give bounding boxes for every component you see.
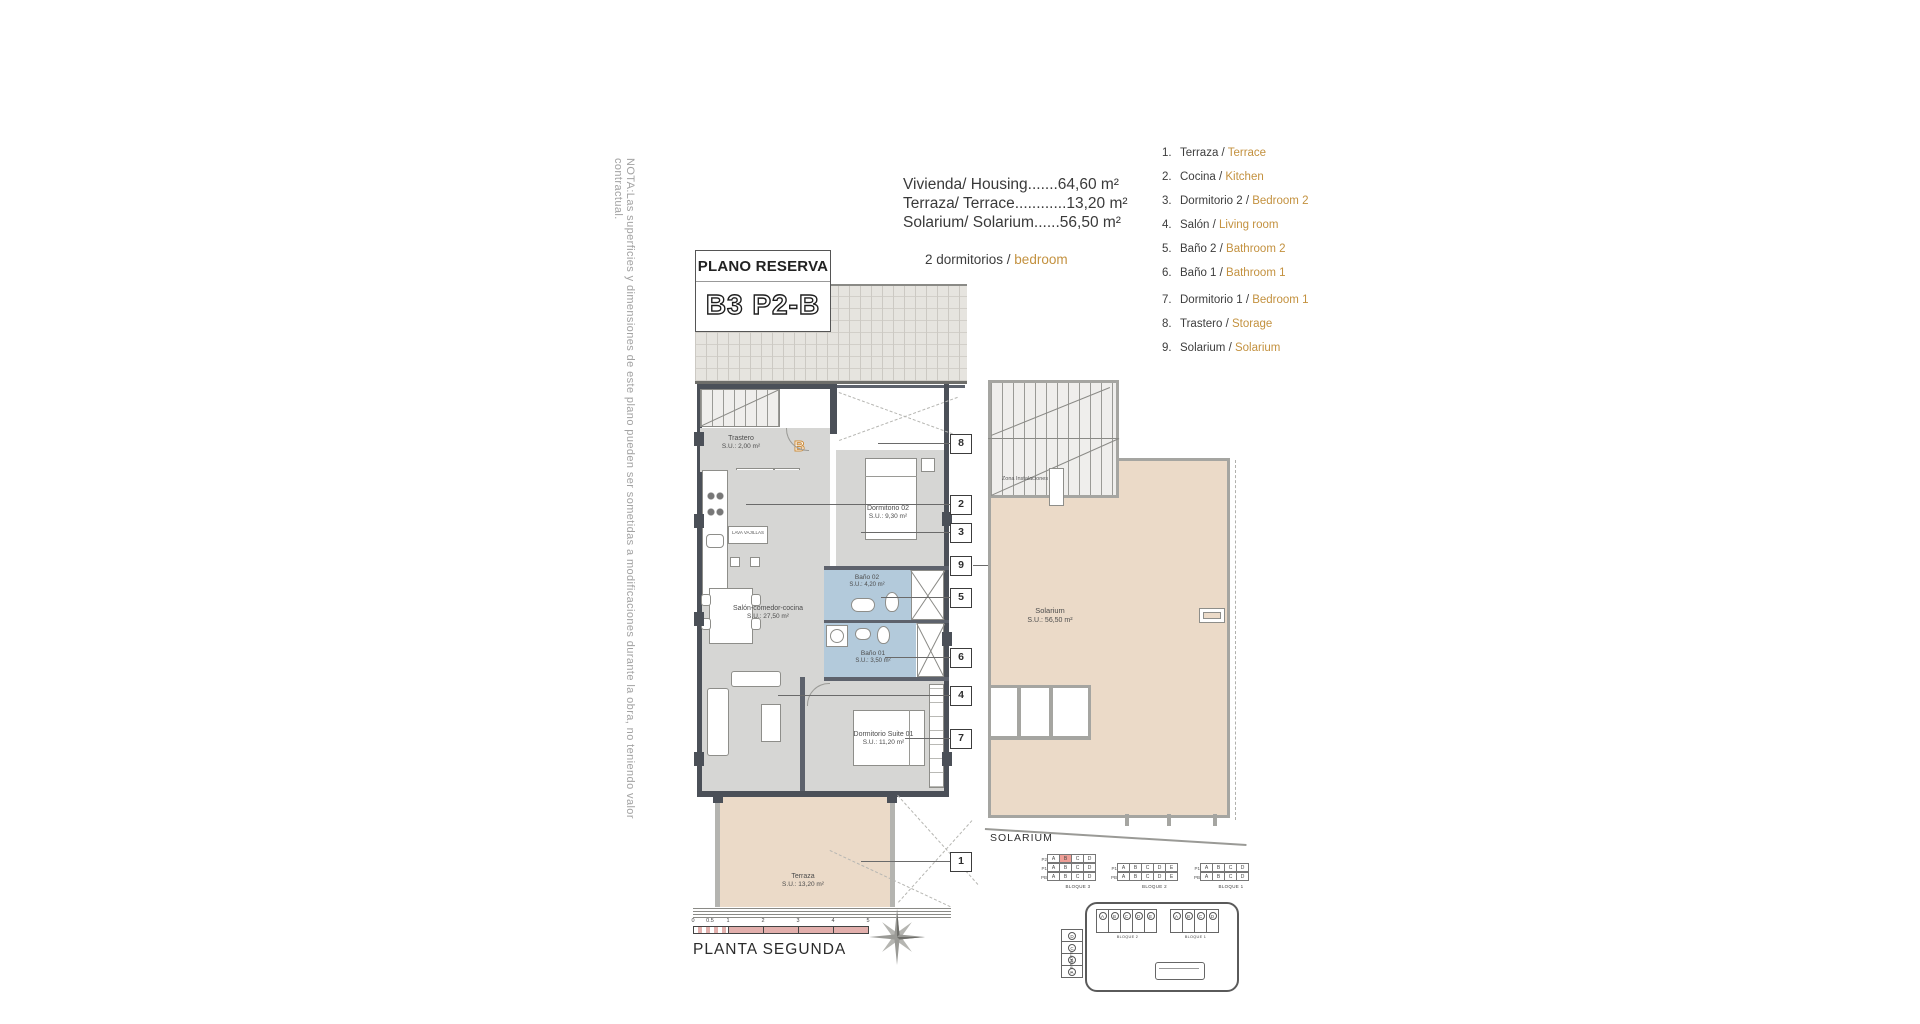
legend-num: 9.: [1162, 342, 1180, 354]
legend-item-2: 2.Cocina / Kitchen: [1162, 171, 1264, 183]
legend-item-4: 4.Salón / Living room: [1162, 219, 1278, 231]
legend-en: Living room: [1219, 219, 1278, 231]
callout-3: 3: [950, 523, 972, 543]
wall-entry-pillar: [830, 384, 837, 434]
callout-8: 8: [950, 434, 972, 454]
bedroom2-label: Dormitorio 02 S.U.: 9,30 m²: [838, 504, 938, 522]
utility-closet: [1049, 468, 1064, 506]
callout-line-2: [746, 504, 950, 505]
room-name: Baño 02: [824, 574, 910, 582]
legend-es: Dormitorio 2 /: [1180, 195, 1252, 207]
siteplan-bloque2-caption: BLOQUE 2: [1097, 935, 1158, 939]
block-caption: BLOQUE 1: [1200, 884, 1262, 889]
stool: [750, 557, 760, 567]
toilet: [877, 626, 890, 644]
compass-rose-icon: [868, 908, 926, 966]
legend-item-9: 9.Solarium / Solarium: [1162, 342, 1280, 354]
legend-es: Baño 2 /: [1180, 243, 1226, 255]
legend-en: Terrace: [1228, 147, 1266, 159]
legend-es: Dormitorio 1 /: [1180, 294, 1252, 306]
unit-cell: D: [1083, 872, 1096, 881]
legend-en: Storage: [1232, 318, 1272, 330]
reserva-title: PLANO RESERVA: [696, 258, 830, 275]
solarium-caption: SOLARIUM: [990, 832, 1053, 844]
callout-6: 6: [950, 648, 972, 668]
legend-num: 8.: [1162, 318, 1180, 330]
room-area: S.U.: 13,20 m²: [743, 881, 863, 889]
unit-letter: D: [1209, 912, 1217, 920]
legend-num: 5.: [1162, 243, 1180, 255]
unit-code: B3 P2-B: [696, 289, 830, 321]
legend-item-5: 5.Baño 2 / Bathroom 2: [1162, 243, 1286, 255]
room-area: S.U.: 2,00 m²: [700, 443, 782, 451]
reserva-box: PLANO RESERVA B3 P2-B: [695, 250, 831, 332]
void-top-dash-1: [839, 392, 958, 436]
nightstand: [921, 458, 935, 472]
callout-1: 1: [950, 852, 972, 872]
void-top-dash-2: [839, 397, 958, 441]
site-unit: D: [1206, 909, 1219, 933]
callout-5: 5: [950, 588, 972, 608]
hob-icon: [705, 488, 725, 522]
pillar: [942, 752, 952, 766]
room-name: Solarium: [1015, 606, 1085, 616]
scale-tick-2: 2: [761, 918, 764, 924]
legend-num: 1.: [1162, 147, 1180, 159]
scale-tick-3: 3: [796, 918, 799, 924]
solarium-cutout: [991, 685, 1091, 740]
legend-en: Bathroom 1: [1226, 267, 1285, 279]
legend-num: 3.: [1162, 195, 1180, 207]
scale-tick-4: 4: [831, 918, 834, 924]
callout-9: 9: [950, 556, 972, 576]
callout-line-8: [878, 443, 950, 444]
bathroom1-label: Baño 01 S.U.: 3,50 m²: [833, 650, 913, 666]
living-room-label: Salón-comedor-cocina S.U.: 27,50 m²: [713, 604, 823, 622]
unit-letter: B: [1185, 912, 1193, 920]
legend-es: Terraza /: [1180, 147, 1228, 159]
site-plan: A B C D E BLOQUE 2 A B C D BLOQUE 1 D C …: [1085, 902, 1239, 992]
room-name: Terraza: [743, 872, 863, 881]
solarium-label: Solarium S.U.: 56,50 m²: [1015, 606, 1085, 625]
washing-machine-drum: [830, 629, 844, 643]
bathroom2-label: Baño 02 S.U.: 4,20 m²: [824, 574, 910, 590]
siteplan-bloque1-caption: BLOQUE 1: [1171, 935, 1220, 939]
unit-cell: D: [1236, 872, 1249, 881]
unit-cell: E: [1165, 872, 1178, 881]
pillar: [887, 791, 897, 803]
room-area: S.U.: 9,30 m²: [838, 513, 938, 521]
parcel-dashed-line: [1235, 460, 1236, 820]
legend-num: 2.: [1162, 171, 1180, 183]
legend-es: Salón /: [1180, 219, 1219, 231]
solarium-plan: Zona Instalaciones Solarium S.U.: 56,50 …: [985, 380, 1247, 856]
keyplan-table-bloque2: P1 A B C D E PB A B C D E BLOQUE 2: [1106, 864, 1192, 889]
stairs-divider: [988, 438, 1119, 439]
callout-line-7: [905, 738, 950, 739]
callout-4: 4: [950, 686, 972, 706]
room-area: S.U.: 11,20 m²: [831, 739, 936, 747]
terrace-floor: [720, 797, 890, 907]
railing-post: [1125, 814, 1129, 826]
legend-num: 4.: [1162, 219, 1180, 231]
area-solarium: Solarium/ Solarium......56,50 m²: [903, 214, 1121, 232]
unit-letter: E: [1147, 912, 1155, 920]
pillar: [713, 791, 723, 803]
bedrooms-es: 2 dormitorios /: [925, 252, 1011, 267]
railing-post: [1213, 814, 1217, 826]
unit-cell: E: [1165, 863, 1178, 872]
scale-divider: [833, 926, 834, 934]
scale-tick-1: 1: [726, 918, 729, 924]
legend-es: Baño 1 /: [1180, 267, 1226, 279]
unit-cell: D: [1236, 863, 1249, 872]
callout-line-3: [861, 532, 950, 533]
legend-es: Trastero /: [1180, 318, 1232, 330]
legend-en: Kitchen: [1225, 171, 1263, 183]
sink: [851, 598, 875, 612]
area-housing: Vivienda/ Housing.......64,60 m²: [903, 176, 1119, 194]
sofa: [731, 671, 781, 687]
unit-cell: D: [1083, 863, 1096, 872]
bedrooms-en: bedroom: [1014, 252, 1067, 267]
legend-num: 6.: [1162, 267, 1180, 279]
keyplan-table-bloque3: P2 A B C D P1 A B C D PB A B C D BLOQUE …: [1036, 855, 1109, 889]
callout-2: 2: [950, 495, 972, 515]
solarium-body: [988, 458, 1230, 818]
legend-es: Solarium /: [1180, 342, 1235, 354]
unit-letter: D: [1135, 912, 1143, 920]
scale-divider: [763, 926, 764, 934]
tv-cabinet: [761, 704, 781, 742]
terrace-wall-right: [890, 797, 895, 907]
pillar: [942, 632, 952, 646]
stool: [730, 557, 740, 567]
legend-es: Cocina /: [1180, 171, 1225, 183]
callout-7: 7: [950, 729, 972, 749]
disclaimer-note: NOTA:Las superficies y dimensiones de es…: [612, 158, 636, 838]
callout-line-5: [881, 597, 950, 598]
trastero-label: Trastero S.U.: 2,00 m²: [700, 434, 782, 452]
siteplan-bloque2-row: A B C D E: [1097, 909, 1157, 933]
unit-letter: C: [1197, 912, 1205, 920]
kitchen-sink: [706, 534, 724, 548]
room-name: Salón-comedor-cocina: [713, 604, 823, 613]
legend-item-7: 7.Dormitorio 1 / Bedroom 1: [1162, 294, 1308, 306]
chair: [701, 594, 711, 606]
toilet: [885, 592, 899, 612]
callout-line-1: [861, 861, 950, 862]
railing-post: [1049, 685, 1053, 740]
dishwasher: LAVA VAJILLAS: [728, 526, 768, 544]
siteplan-bloque1-row: A B C D: [1171, 909, 1219, 933]
legend-en: Bedroom 1: [1252, 294, 1308, 306]
room-area: S.U.: 27,50 m²: [713, 613, 823, 621]
legend-en: Bedroom 2: [1252, 195, 1308, 207]
apartment-plan: Trastero S.U.: 2,00 m² B HORNO MICRO FRI…: [693, 282, 985, 930]
room-name: Trastero: [700, 434, 782, 443]
access-hatch-inner: [1203, 612, 1221, 619]
room-area: S.U.: 4,20 m²: [824, 582, 910, 590]
area-terrace: Terraza/ Terrace............13,20 m²: [903, 195, 1128, 213]
terrace-label: Terraza S.U.: 13,20 m²: [743, 872, 863, 890]
sofa: [707, 688, 729, 756]
site-unit: E: [1144, 909, 1157, 933]
legend-en: Bathroom 2: [1226, 243, 1285, 255]
legend-item-8: 8.Trastero / Storage: [1162, 318, 1272, 330]
reserva-divider: [696, 281, 830, 282]
floor-title: PLANTA SEGUNDA: [693, 941, 846, 959]
callout-line-6: [885, 657, 950, 658]
callout-line-4: [778, 695, 950, 696]
railing-post: [1167, 814, 1171, 826]
sink: [855, 628, 871, 640]
room-area: S.U.: 56,50 m²: [1015, 616, 1085, 625]
pool-shape: [1155, 962, 1205, 980]
pillar: [694, 514, 704, 528]
scale-bar-checker: [694, 927, 728, 933]
zona-instalaciones-label: Zona Instalaciones: [997, 476, 1053, 483]
unit-letter: D: [1068, 932, 1076, 940]
bedrooms-line: 2 dormitorios / bedroom: [925, 252, 1068, 267]
scale-tick-05: 0.5: [706, 918, 714, 924]
pillar: [694, 432, 704, 446]
unit-cell: D: [1083, 854, 1096, 863]
room-name: Dormitorio 02: [838, 504, 938, 513]
unit-letter: B: [1111, 912, 1119, 920]
floorplan-sheet: NOTA:Las superficies y dimensiones de es…: [0, 0, 1920, 1024]
pool-inner-line: [1159, 968, 1199, 969]
unit-letter: A: [1099, 912, 1107, 920]
wall-right: [944, 384, 949, 796]
scale-bar: 0 0.5 1 2 3 4 5: [693, 918, 873, 940]
unit-letter: C: [1123, 912, 1131, 920]
legend-item-3: 3.Dormitorio 2 / Bedroom 2: [1162, 195, 1308, 207]
unit-letter: A: [1173, 912, 1181, 920]
unit-letter: C: [1068, 944, 1076, 952]
scale-tick-0: 0: [691, 918, 694, 924]
pillar: [694, 752, 704, 766]
siteplan-bloque3-caption: BLOQUE 3: [1069, 952, 1073, 973]
pillar: [694, 612, 704, 626]
scale-divider: [798, 926, 799, 934]
bed: [865, 458, 917, 540]
block-caption: BLOQUE 3: [1047, 884, 1109, 889]
scale-divider: [728, 926, 729, 934]
keyplan-table-bloque1: P1 A B C D PB A B C D BLOQUE 1: [1189, 864, 1262, 889]
bed-pillow-line: [865, 476, 917, 477]
room-area: S.U.: 3,50 m²: [833, 658, 913, 666]
legend-en: Solarium: [1235, 342, 1280, 354]
block-caption: BLOQUE 2: [1117, 884, 1192, 889]
railing-rail: [991, 736, 1091, 740]
legend-item-6: 6.Baño 1 / Bathroom 1: [1162, 267, 1286, 279]
legend-num: 7.: [1162, 294, 1180, 306]
railing-post: [1017, 685, 1021, 740]
legend-item-1: 1.Terraza / Terrace: [1162, 147, 1266, 159]
